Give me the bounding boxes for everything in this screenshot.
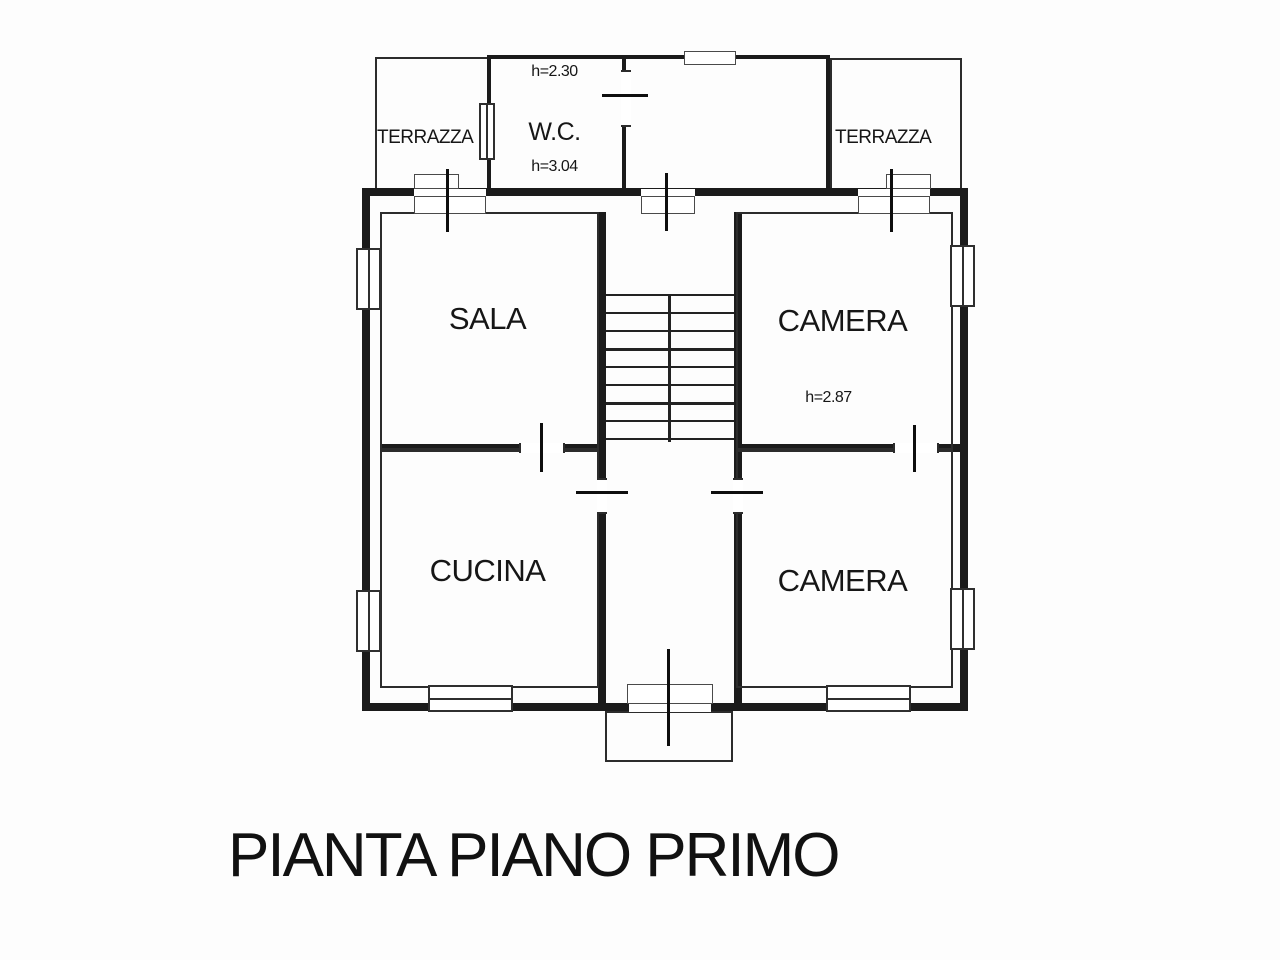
camera-top-height: h=2.87 [736,389,921,407]
door-gap [597,478,607,514]
door-gap [733,478,743,514]
door-icon [890,169,893,232]
door-gap [893,443,939,453]
door-icon [711,491,763,494]
window-icon [950,588,975,650]
room-label-camera-bottom: CAMERA [736,563,949,599]
stair-divider [668,296,671,442]
wc-height-upper: h=2.30 [487,63,622,81]
room-label-camera-top: CAMERA [736,303,949,339]
door-gap [414,189,486,196]
plan-title: PIANTA PIANO PRIMO [228,820,839,891]
door-icon [667,649,670,746]
door-frame [414,196,486,214]
window-icon [826,685,911,712]
door-frame [627,684,713,704]
wc-height-lower: h=3.04 [487,158,622,176]
room-label-sala: SALA [380,301,595,337]
door-icon [540,423,543,472]
door-frame [414,174,459,189]
stairs [606,294,734,444]
window-icon [428,685,513,712]
door-icon [602,94,648,97]
door-icon [913,425,916,472]
room-label-terrazza-right: TERRAZZA [835,127,931,149]
window-icon [950,245,975,307]
door-gap [641,189,695,196]
door-frame [858,196,930,214]
stairwell-wall-left [598,212,606,703]
room-label-terrazza-left: TERRAZZA [377,127,473,149]
door-icon [665,173,668,231]
floor-plan: TERRAZZA TERRAZZA h=2.30 W.C. h=3.04 SAL… [0,0,1280,960]
room-label-cucina: CUCINA [380,553,595,589]
window-icon [684,51,736,65]
window-icon [356,248,381,310]
room-label-wc: W.C. [487,118,622,147]
door-icon [576,491,628,494]
door-gap [858,189,930,196]
window-icon [356,590,381,652]
upper-room-outline [622,55,830,196]
door-gap [621,70,631,127]
door-frame [641,196,695,214]
door-icon [446,169,449,232]
